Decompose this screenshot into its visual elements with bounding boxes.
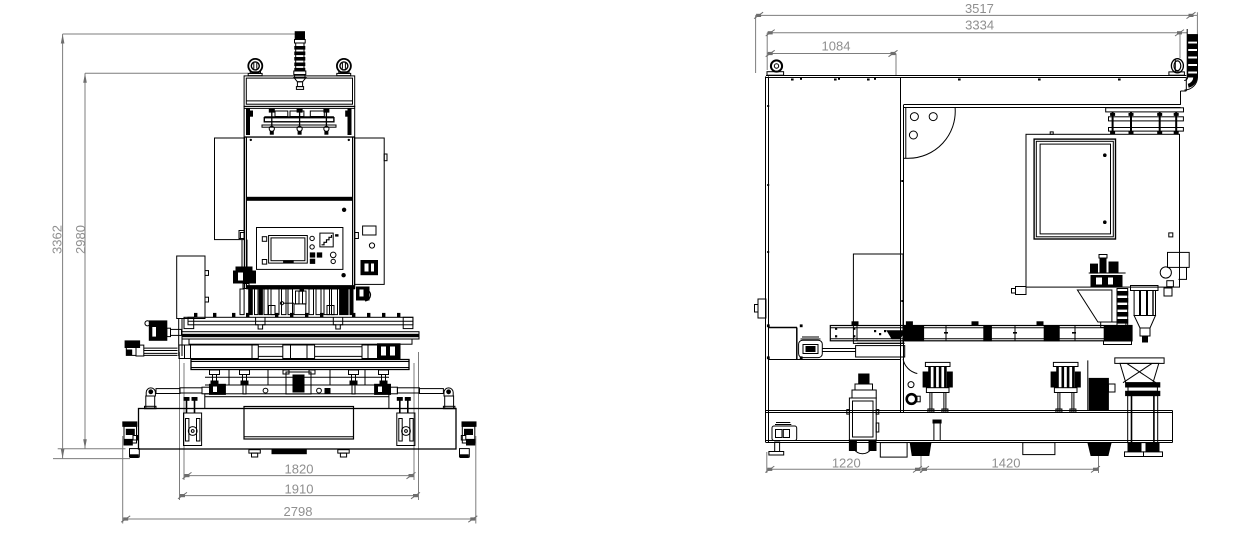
svg-text:1084: 1084 (822, 39, 851, 54)
svg-text:3517: 3517 (965, 1, 994, 16)
svg-text:3362: 3362 (50, 225, 65, 254)
svg-text:2980: 2980 (73, 225, 88, 254)
svg-text:1820: 1820 (285, 462, 314, 477)
svg-text:1220: 1220 (832, 455, 861, 470)
svg-text:1910: 1910 (285, 481, 314, 496)
svg-text:1420: 1420 (992, 455, 1021, 470)
svg-text:3334: 3334 (965, 18, 994, 33)
svg-text:2798: 2798 (284, 504, 313, 519)
